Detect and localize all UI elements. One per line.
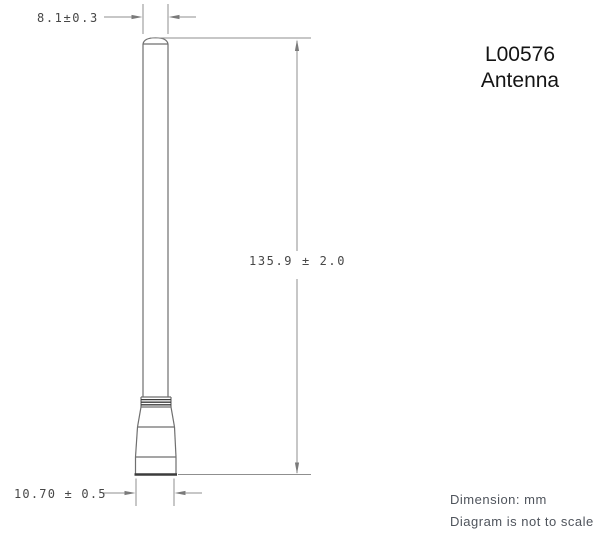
upper-taper-left (138, 407, 142, 427)
lower-taper-right (175, 427, 177, 457)
overall-length-dimension-text: 135.9 ± 2.0 (249, 254, 346, 268)
tip-diameter-dimension-text: 8.1±0.3 (37, 11, 99, 25)
base-dim-arrowhead-right (175, 491, 186, 495)
scale-note: Diagram is not to scale (450, 514, 594, 529)
base-dim-arrowhead-left (125, 491, 136, 495)
units-note: Dimension: mm (450, 492, 547, 507)
collar-ridge-lines (141, 400, 171, 405)
part-name: Antenna (455, 68, 585, 94)
tip-diameter-dimension-lines (104, 4, 196, 34)
length-dim-arrowhead-down (295, 463, 299, 475)
lower-taper-left (136, 427, 138, 457)
base-diameter-dimension-lines (102, 479, 202, 507)
whip-dome-cap (143, 38, 168, 44)
antenna-dimension-drawing: 8.1±0.3 135.9 ± 2.0 10.70 ± 0.5 L00576 A… (0, 0, 608, 550)
tip-dim-arrowhead-left (132, 15, 143, 19)
base-diameter-dimension-text: 10.70 ± 0.5 (14, 487, 107, 501)
part-number: L00576 (455, 42, 585, 68)
tip-dim-arrowhead-right (169, 15, 180, 19)
antenna-whip (143, 38, 168, 397)
antenna-base (135, 397, 178, 475)
upper-taper-right (171, 407, 175, 427)
length-dim-arrowhead-up (295, 40, 299, 52)
title-block: L00576 Antenna (455, 42, 585, 94)
